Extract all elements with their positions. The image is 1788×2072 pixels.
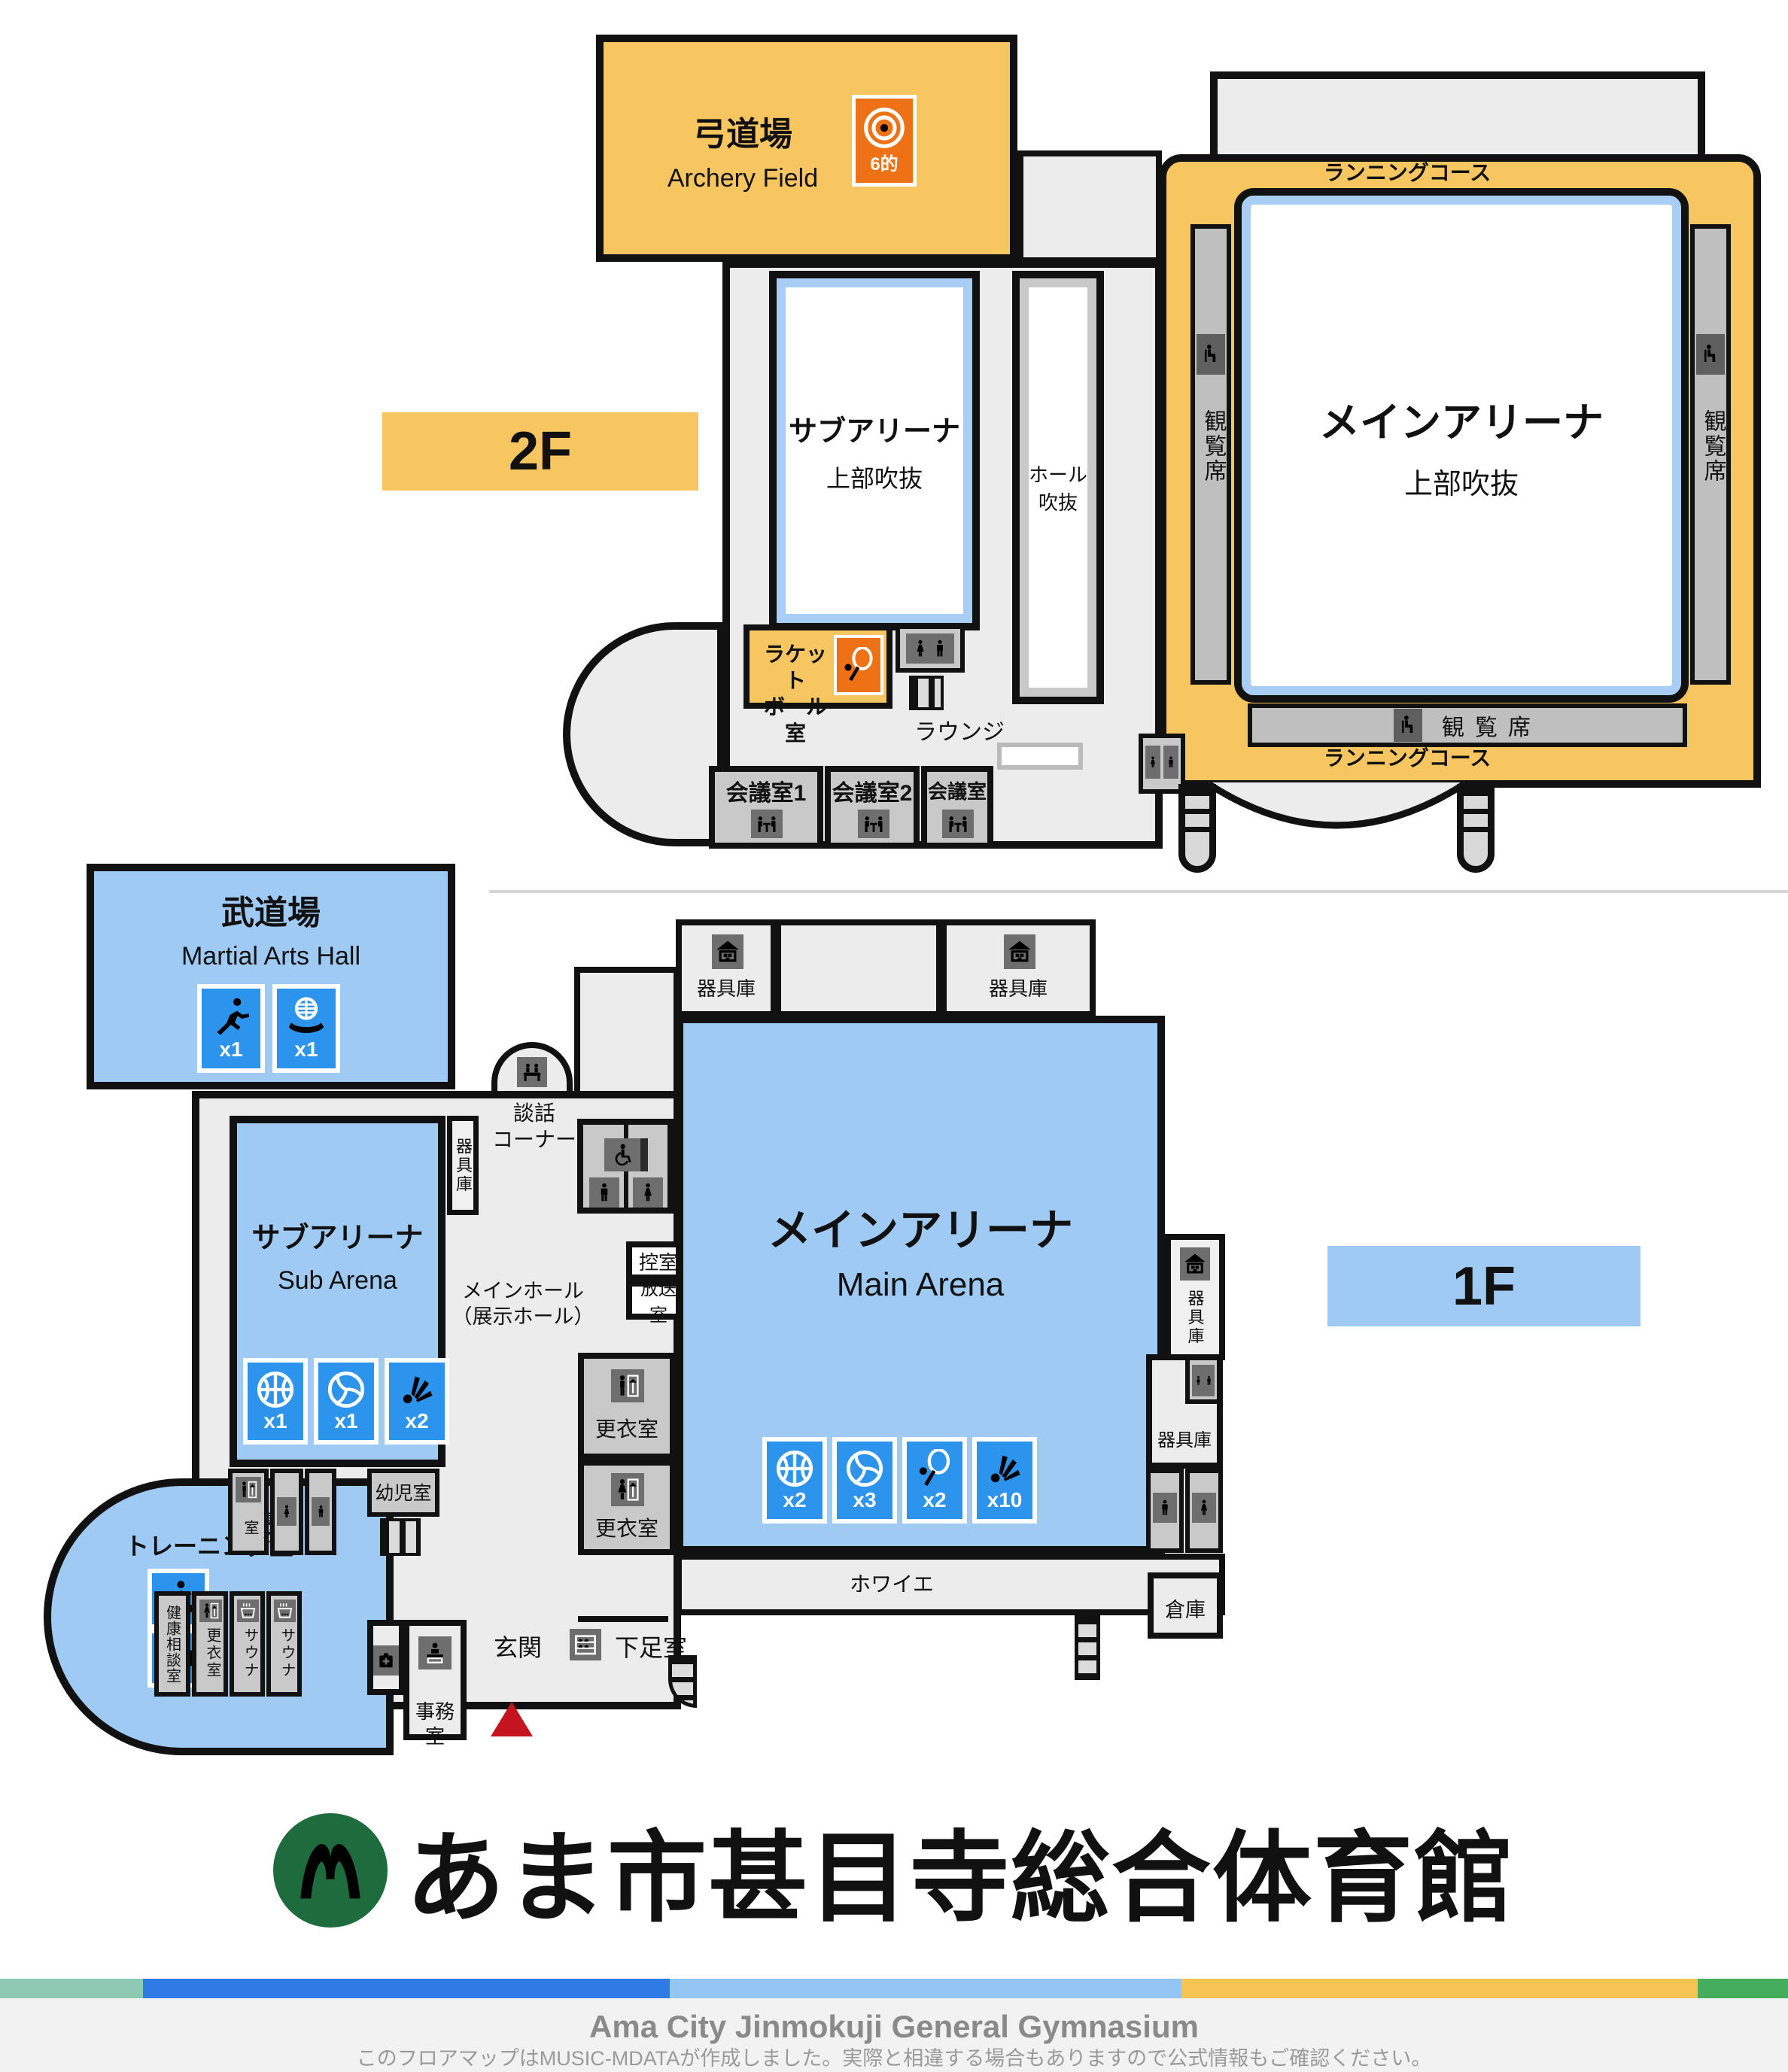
seats-left-label: 観覧席 bbox=[1199, 409, 1227, 484]
sauna-label: サウナ bbox=[277, 1627, 296, 1679]
seat-icon bbox=[1197, 334, 1225, 375]
female-icon bbox=[1194, 1371, 1203, 1390]
archery-name: 弓道場 bbox=[604, 114, 882, 155]
kigu-label: 器具庫 bbox=[682, 977, 771, 1001]
seat-icon bbox=[1696, 334, 1725, 375]
room-office: 事務室 bbox=[403, 1620, 467, 1740]
racquetball-line1: ラケット bbox=[754, 641, 837, 694]
budokan-en: Martial Arts Hall bbox=[94, 940, 448, 973]
room-kigu-northeast: 器具庫 bbox=[941, 919, 1096, 1017]
sauna-icon bbox=[237, 1600, 259, 1622]
room-meeting-3: 会議室 bbox=[921, 766, 993, 849]
floor-map: 2F 弓道場 Archery Field 6的 サブアリーナ 上部吹抜 ホール … bbox=[0, 0, 1788, 2072]
floor-divider bbox=[489, 890, 1788, 893]
room-sub-arena-void: サブアリーナ 上部吹抜 bbox=[769, 271, 980, 630]
stripe-segment bbox=[143, 1979, 670, 1998]
hikae-label: 控室 bbox=[639, 1247, 678, 1275]
judo-count: x1 bbox=[219, 1038, 242, 1062]
stripe-segment bbox=[1698, 1979, 1788, 1998]
kendo-count: x1 bbox=[294, 1038, 318, 1062]
sub-arena-badminton-count: x2 bbox=[405, 1409, 428, 1433]
tennis-icon: x2 bbox=[902, 1437, 967, 1524]
room-koui-male: 更衣室 bbox=[578, 1353, 676, 1460]
room-koui-female: 更衣室 bbox=[578, 1460, 676, 1555]
main-arena-void-note: 上部吹抜 bbox=[1404, 460, 1519, 502]
archery-target-icon: 6的 bbox=[852, 95, 917, 187]
archery-en: Archery Field bbox=[604, 163, 882, 195]
sub-arena-void-name: サブアリーナ bbox=[789, 408, 960, 449]
room-firstaid bbox=[367, 1620, 405, 1695]
yoji-label: 幼児室 bbox=[372, 1482, 435, 1505]
seats-right-label: 観覧席 bbox=[1698, 409, 1727, 484]
running-course-bottom-label: ランニングコース bbox=[1249, 745, 1565, 771]
toilet-1f-west-female bbox=[270, 1469, 303, 1555]
main-arena-void-name: メインアリーナ bbox=[1319, 389, 1604, 448]
meeting-table-icon bbox=[858, 810, 889, 838]
floor-2f-badge: 2F bbox=[382, 412, 698, 491]
brand-stripe bbox=[0, 1979, 1788, 1998]
seat-icon bbox=[1394, 709, 1422, 742]
stairs-1f-east bbox=[1075, 1615, 1100, 1680]
stripe-segment bbox=[670, 1979, 1181, 1998]
sauna-label: サウナ bbox=[240, 1627, 259, 1679]
room-meeting-1: 会議室1 bbox=[709, 766, 823, 849]
sub-arena-basketball-count: x1 bbox=[263, 1409, 287, 1433]
meeting-1-label: 会議室1 bbox=[715, 779, 817, 808]
room-yoji: 幼児室 bbox=[367, 1469, 439, 1517]
entrance-label: 玄関 bbox=[473, 1633, 563, 1663]
basketball-icon: x1 bbox=[243, 1358, 308, 1445]
floor-1f-badge: 1F bbox=[1327, 1246, 1641, 1326]
facility-title-en: Ama City Jinmokuji General Gymnasium bbox=[0, 2007, 1788, 2047]
male-icon bbox=[1163, 746, 1178, 779]
seats-right: 観覧席 bbox=[1690, 224, 1731, 685]
changing-female-icon bbox=[199, 1600, 222, 1622]
seats-bottom-label: 観覧席 bbox=[1442, 709, 1541, 742]
changing-female-icon bbox=[611, 1473, 644, 1506]
female-icon bbox=[911, 639, 929, 658]
entrance-marker bbox=[491, 1702, 533, 1736]
room-meeting-2: 会議室2 bbox=[825, 766, 920, 849]
male-icon bbox=[1204, 1371, 1214, 1390]
souko-label: 倉庫 bbox=[1154, 1598, 1217, 1624]
main-arena-en: Main Arena bbox=[683, 1264, 1157, 1305]
male-icon bbox=[931, 639, 949, 658]
toilet-1f-west-male bbox=[305, 1469, 336, 1555]
apron-curve bbox=[1204, 782, 1469, 874]
toilet-1f-east-shared bbox=[1185, 1356, 1221, 1404]
kigu-label: 器具庫 bbox=[451, 1138, 475, 1194]
building-2f-round-wing bbox=[563, 622, 725, 846]
meeting-2-label: 会議室2 bbox=[831, 779, 914, 808]
room-koui-spa: 更衣室 bbox=[192, 1591, 228, 1697]
budokan-name: 武道場 bbox=[94, 892, 448, 934]
room-kigu-east: 器具庫 bbox=[1165, 1234, 1225, 1360]
storage-house-icon bbox=[712, 934, 743, 969]
shoe-rack-icon bbox=[570, 1629, 601, 1660]
bench-icon bbox=[517, 1057, 547, 1087]
koui-label: 更衣室 bbox=[584, 1515, 670, 1542]
stairs-2f-southeast bbox=[1457, 784, 1495, 873]
toilet-1f-center bbox=[577, 1119, 674, 1214]
seats-bottom: 観覧席 bbox=[1248, 703, 1687, 747]
main-arena-name: メインアリーナ bbox=[683, 1204, 1157, 1259]
stairs-2f-southwest bbox=[1178, 784, 1216, 873]
room-sub-arena: サブアリーナ Sub Arena x1 x1 x2 bbox=[230, 1116, 445, 1467]
changing-male-icon bbox=[611, 1369, 644, 1402]
danwa-line2: コーナー bbox=[474, 1126, 594, 1153]
male-icon bbox=[589, 1177, 619, 1208]
danwa-line1: 談話 bbox=[474, 1100, 594, 1126]
kendo-icon: x1 bbox=[272, 984, 340, 1073]
sub-arena-volleyball-count: x1 bbox=[334, 1409, 357, 1433]
sub-arena-name: サブアリーナ bbox=[237, 1221, 438, 1257]
main-arena-volleyball-count: x3 bbox=[853, 1488, 876, 1512]
office-label: 事務室 bbox=[409, 1700, 461, 1748]
footer-band: Ama City Jinmokuji General Gymnasium このフ… bbox=[0, 1998, 1788, 2072]
male-icon bbox=[1153, 1493, 1177, 1523]
footer-title-row: あま市甚目寺総合体育館 bbox=[0, 1789, 1788, 1951]
room-storage-middle bbox=[775, 919, 942, 1017]
room-budokan: 武道場 Martial Arts Hall x1 x1 bbox=[87, 864, 455, 1089]
main-arena-tennis-count: x2 bbox=[923, 1488, 946, 1512]
seats-left: 観覧席 bbox=[1190, 224, 1231, 685]
sauna-icon bbox=[274, 1600, 296, 1622]
shoe-wall bbox=[578, 1616, 668, 1622]
kigu-label: 器具庫 bbox=[1184, 1290, 1206, 1346]
sub-arena-void-note: 上部吹抜 bbox=[826, 460, 923, 494]
foyer-label: ホワイエ bbox=[828, 1571, 956, 1597]
badminton-icon: x2 bbox=[385, 1358, 449, 1445]
firstaid-icon bbox=[373, 1645, 399, 1676]
main-arena-basketball-count: x2 bbox=[783, 1488, 806, 1512]
room-kigu-sub-arena: 器具庫 bbox=[447, 1116, 479, 1215]
volleyball-icon: x1 bbox=[314, 1358, 379, 1445]
male-icon bbox=[312, 1497, 330, 1526]
storage-house-icon bbox=[1004, 934, 1035, 969]
room-koui-1f-male: 更衣室 bbox=[228, 1469, 269, 1555]
floor-1f-label: 1F bbox=[1452, 1256, 1516, 1317]
room-health: 健康相談室 bbox=[154, 1591, 190, 1697]
room-sauna-1: サウナ bbox=[230, 1591, 265, 1697]
wheelchair-icon bbox=[604, 1138, 648, 1171]
corridor-2f-connector bbox=[1017, 150, 1162, 263]
stairs-1f-center bbox=[380, 1518, 421, 1556]
facility-logo bbox=[273, 1813, 388, 1928]
volleyball-icon: x3 bbox=[832, 1437, 897, 1524]
stripe-segment bbox=[0, 1979, 143, 1998]
female-icon bbox=[633, 1177, 663, 1208]
room-racquetball: ラケット ボール室 bbox=[743, 624, 892, 709]
stripe-segment bbox=[1181, 1979, 1698, 1998]
racquetball-line2: ボール室 bbox=[754, 694, 837, 746]
meeting-table-icon bbox=[942, 810, 974, 838]
footer-note: このフロアマップはMUSIC-MDATAが作成しました。実際と相違する場合もあり… bbox=[0, 2046, 1788, 2072]
room-hall-void: ホール 吹抜 bbox=[1012, 271, 1104, 704]
main-hall-line2: （展示ホール） bbox=[436, 1305, 610, 1330]
reception-icon bbox=[418, 1636, 452, 1669]
room-main-arena-void: メインアリーナ 上部吹抜 bbox=[1234, 188, 1689, 703]
toilet-2f-center bbox=[896, 624, 965, 673]
stairs-2f-center bbox=[909, 676, 944, 710]
room-archery-field: 弓道場 Archery Field 6的 bbox=[596, 35, 1017, 262]
toilet-2f-icons bbox=[906, 633, 954, 664]
toilet-1f-east-male bbox=[1146, 1469, 1184, 1553]
sub-arena-en: Sub Arena bbox=[237, 1265, 438, 1297]
kigu-label: 器具庫 bbox=[1152, 1429, 1217, 1452]
racquetball-icon bbox=[834, 635, 883, 695]
koui-label: 更衣室 bbox=[584, 1416, 670, 1442]
hall-void-line2: 吹抜 bbox=[1038, 488, 1078, 515]
health-label: 健康相談室 bbox=[162, 1605, 184, 1684]
storage-house-icon bbox=[1180, 1247, 1210, 1281]
hall-opening bbox=[997, 743, 1083, 770]
lounge-label: ラウンジ bbox=[907, 719, 1012, 747]
toilet-icons bbox=[1192, 1365, 1215, 1396]
room-kigu-northwest: 器具庫 bbox=[676, 919, 777, 1017]
kigu-label: 器具庫 bbox=[947, 977, 1090, 1001]
room-sauna-2: サウナ bbox=[266, 1591, 302, 1697]
main-arena-badminton-count: x10 bbox=[987, 1488, 1023, 1512]
toilet-1f-east-female bbox=[1185, 1469, 1223, 1553]
room-souko: 倉庫 bbox=[1148, 1572, 1223, 1639]
main-hall-line1: メインホール bbox=[436, 1279, 610, 1305]
basketball-icon: x2 bbox=[762, 1437, 827, 1524]
logo-mountain-icon bbox=[288, 1828, 372, 1912]
badminton-icon: x10 bbox=[972, 1437, 1037, 1524]
koui-label: 更衣室 bbox=[202, 1627, 221, 1679]
female-icon bbox=[277, 1497, 296, 1526]
hall-void-line1: ホール bbox=[1029, 460, 1087, 488]
judo-icon: x1 bbox=[197, 984, 265, 1073]
changing-male-icon bbox=[236, 1477, 261, 1502]
room-main-arena: メインアリーナ Main Arena x2 x3 x2 x10 bbox=[676, 1016, 1165, 1554]
facility-title: あま市甚目寺総合体育館 bbox=[406, 1798, 1515, 1942]
alcove-danwa bbox=[491, 1042, 573, 1098]
floor-2f-label: 2F bbox=[509, 421, 572, 482]
female-icon bbox=[1192, 1493, 1216, 1523]
meeting-3-label: 会議室 bbox=[927, 779, 987, 804]
corridor-1f-north bbox=[574, 967, 680, 1098]
meeting-table-icon bbox=[751, 810, 783, 838]
archery-target-count: 6的 bbox=[870, 149, 898, 175]
female-icon bbox=[1145, 746, 1160, 779]
running-course-top-label: ランニングコース bbox=[1249, 160, 1565, 186]
